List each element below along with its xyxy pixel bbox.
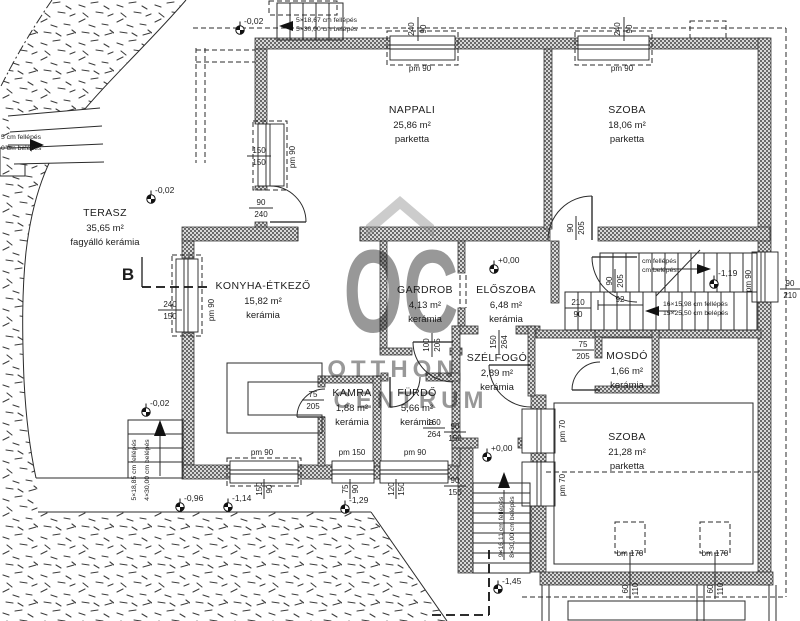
room-label-eloszoba: ELŐSZOBA 6,48 m² kerámia xyxy=(476,282,536,325)
room-floor: parketta xyxy=(610,461,645,472)
level-value: -1,45 xyxy=(502,576,522,586)
dim-label: bm 170 xyxy=(617,549,644,558)
stair-note: 16×15,98 cm fellépés xyxy=(663,301,728,308)
dim-pm: pm 90 xyxy=(404,448,427,457)
window-furdo-bottom xyxy=(380,461,448,483)
room-area: 2,89 m² xyxy=(481,368,513,379)
dim-value: 90 xyxy=(566,223,575,232)
stair-note: cm belépés xyxy=(642,267,677,274)
wall-segment xyxy=(255,186,267,190)
dim-door-mosdo: 75 205 xyxy=(572,340,594,361)
room-name: KAMRA xyxy=(332,387,371,399)
dim-value: 150 xyxy=(252,146,266,155)
level-marker-garden4: -1,45 xyxy=(494,576,522,593)
section-label: B xyxy=(122,265,134,284)
room-area: 15,82 m² xyxy=(244,296,282,307)
stair-note: 15×25,50 cm belépés xyxy=(663,310,729,317)
room-area: 1,66 m² xyxy=(611,366,643,377)
level-marker-entry: +0,00 xyxy=(483,443,513,461)
dim-92: 92 xyxy=(616,295,625,304)
stair-note: 0 cm belépés xyxy=(1,145,42,152)
room-area: 35,65 m² xyxy=(86,223,124,234)
dim-value: 205 xyxy=(306,402,320,411)
room-label-mosdo: MOSDÓ 1,66 m² kerámia xyxy=(606,349,648,391)
stair-note: 5 cm fellépés xyxy=(1,134,42,141)
room-floor: kerámia xyxy=(408,314,443,325)
roof-dashed-box xyxy=(690,21,726,38)
room-floor: kerámia xyxy=(489,314,524,325)
stair-note: 5×30,00 cm belépés xyxy=(296,26,358,33)
dim-value: 110 xyxy=(631,582,640,595)
room-floor: kerámia xyxy=(610,380,645,391)
dim-value: 75 xyxy=(309,390,318,399)
dim-value: 240 xyxy=(407,22,416,36)
level-value: -1,29 xyxy=(349,495,369,505)
dim-label: bm 170 xyxy=(702,549,729,558)
dim-value: 264 xyxy=(427,430,441,439)
dim-value: 90 xyxy=(625,24,634,33)
dim-value: 75 xyxy=(341,484,350,493)
level-marker-garden1: -0,96 xyxy=(176,493,204,511)
level-marker-stair: -1,19 xyxy=(710,268,738,288)
wall-segment xyxy=(531,395,546,409)
wall-segment xyxy=(531,506,546,572)
stair-note: 4×30,00 cm belépés xyxy=(144,439,151,501)
level-value: -0,96 xyxy=(184,493,204,503)
dim-pm: pm 90 xyxy=(288,145,297,168)
dim-value: 210 xyxy=(571,298,585,307)
dim-value: 90 xyxy=(451,476,460,485)
dim-door-szoba1: 90 205 xyxy=(566,216,586,240)
floor-plan-drawing: OC OTTHON CENTRUM TERASZ 35,65 m² fagyál… xyxy=(0,0,800,621)
dim-pm: pm 90 xyxy=(207,298,216,321)
room-label-szoba2: SZOBA 21,28 m² parketta xyxy=(608,431,646,472)
dim-opening-eloszoba: 210 90 xyxy=(565,298,591,319)
room-area: 4,13 m² xyxy=(409,300,441,311)
wall-segment xyxy=(182,333,194,465)
wall-segment xyxy=(528,326,535,396)
szoba2-inner-outline xyxy=(554,403,753,564)
wall-segment xyxy=(652,330,659,393)
dim-value: 264 xyxy=(500,335,509,349)
dim-pm: pm 90 xyxy=(611,64,634,73)
dim-value: 90 xyxy=(257,198,266,207)
room-label-nappali: NAPPALI 25,86 m² parketta xyxy=(389,104,435,145)
room-area: 21,28 m² xyxy=(608,447,646,458)
wall-segment xyxy=(544,49,552,229)
dim-value: 150 xyxy=(397,482,406,496)
room-floor: kerámia xyxy=(480,382,515,393)
window-konyha-left xyxy=(172,255,202,336)
room-name: TERASZ xyxy=(83,207,127,219)
wall-segment xyxy=(540,572,773,585)
room-name: SZÉLFOGÓ xyxy=(467,351,527,364)
wall-segment xyxy=(551,241,559,303)
room-label-szoba1: SZOBA 18,06 m² parketta xyxy=(608,104,646,145)
dim-value: 90 xyxy=(265,484,274,493)
dim-value: 150 xyxy=(448,488,462,497)
wall-segment xyxy=(595,337,602,358)
level-marker-top: -0,02 xyxy=(236,16,264,34)
room-name: SZOBA xyxy=(608,431,646,443)
dim-value: 90 xyxy=(786,279,795,288)
level-value: -0,02 xyxy=(150,398,170,408)
dim-value: 60 xyxy=(706,584,715,593)
stairs-inner-lower-flight xyxy=(565,292,757,330)
stair-note: 8×30,00 cm belépés xyxy=(509,496,516,558)
room-floor: fagyálló kerámia xyxy=(70,237,140,248)
room-name: MOSDÓ xyxy=(606,349,648,362)
dim-value: 150 xyxy=(448,434,462,443)
wall-segment xyxy=(758,302,771,585)
stair-note: 9×16,11 cm fellépés xyxy=(498,496,505,557)
wall-segment xyxy=(458,241,465,273)
dim-value: 205 xyxy=(616,274,625,288)
room-floor: kerámia xyxy=(335,417,370,428)
dim-pm: pm 90 xyxy=(409,64,432,73)
room-name: SZOBA xyxy=(608,104,646,116)
dim-value: 150 xyxy=(255,482,264,496)
window-stairwell-lower xyxy=(522,462,555,506)
dim-pm: pm 70 xyxy=(558,419,567,442)
room-area: 6,48 m² xyxy=(490,300,522,311)
dim-pm: pm 90 xyxy=(251,448,274,457)
wall-segment xyxy=(531,453,546,462)
level-value: -0,02 xyxy=(155,185,175,195)
dim-door-nappali: 90 240 xyxy=(249,198,273,219)
room-area: 5,66 m² xyxy=(401,403,433,414)
window-nappali-top xyxy=(387,31,458,65)
wall-segment xyxy=(595,330,659,337)
dim-value: 205 xyxy=(576,352,590,361)
dim-value: 90 xyxy=(574,310,583,319)
room-area: 18,06 m² xyxy=(608,120,646,131)
room-name: FÜRDŐ xyxy=(397,385,436,399)
dim-door-kamra: 75 205 xyxy=(302,390,324,411)
room-name: GARDROB xyxy=(397,284,453,296)
dim-value: 90 xyxy=(419,24,428,33)
dim-value: 90 xyxy=(605,276,614,285)
window-stairwell-upper xyxy=(522,409,555,453)
level-marker-garden2: -1,14 xyxy=(224,493,252,511)
terrain-hatch-garden xyxy=(0,512,447,621)
wall-segment xyxy=(598,227,770,241)
level-value: -0,02 xyxy=(244,16,264,26)
level-marker-garden3: -1,29 xyxy=(341,495,369,513)
room-name: KONYHA-ÉTKEZŐ xyxy=(215,278,310,292)
dim-value: 205 xyxy=(433,338,442,352)
dim-value: 240 xyxy=(613,22,622,36)
level-value: -1,14 xyxy=(232,493,252,503)
dim-pm: pm 70 xyxy=(558,473,567,496)
wall-segment xyxy=(458,308,465,328)
stair-note: 5×18,67 cm fellépés xyxy=(296,17,358,24)
level-marker-terasz: -0,02 xyxy=(147,185,175,203)
watermark-line1: OTTHON xyxy=(327,356,458,383)
level-value: -1,19 xyxy=(718,268,738,278)
dim-value: 210 xyxy=(783,291,797,300)
level-value: +0,00 xyxy=(491,443,513,453)
dim-value: 60 xyxy=(621,584,630,593)
dim-value: 100 xyxy=(422,338,431,352)
level-marker-eloszoba: +0,00 xyxy=(490,255,520,273)
stair-note: 5×18,85 cm fellépés xyxy=(131,439,138,501)
room-label-kamra: KAMRA 1,88 m² kerámia xyxy=(332,387,371,428)
dim-value: 240 xyxy=(254,210,268,219)
level-marker-corner: -0,02 xyxy=(142,398,170,416)
window-kamra-bottom xyxy=(332,461,374,483)
level-value: +0,00 xyxy=(498,255,520,265)
dim-value: 75 xyxy=(579,340,588,349)
lower-terrace-slab xyxy=(568,601,745,620)
room-label-konyha: KONYHA-ÉTKEZŐ 15,82 m² kerámia xyxy=(215,278,310,321)
window-stairhall-right xyxy=(752,252,778,302)
dim-pm: pm 90 xyxy=(744,269,753,292)
dim-value: 160 xyxy=(427,418,441,427)
door-terasz-nappali xyxy=(270,186,306,222)
wall-segment xyxy=(182,227,298,241)
wall-segment xyxy=(298,465,332,479)
dim-value: 150 xyxy=(489,335,498,349)
floor-plan-canvas: OC OTTHON CENTRUM TERASZ 35,65 m² fagyál… xyxy=(0,0,800,621)
room-area: 1,88 m² xyxy=(336,403,368,414)
dim-pm: pm 150 xyxy=(339,448,366,457)
dim-door-stairhall: 90 205 xyxy=(605,269,625,293)
wall-segment xyxy=(374,465,380,479)
room-floor: parketta xyxy=(395,134,430,145)
dim-value: 90 xyxy=(451,422,460,431)
room-name: NAPPALI xyxy=(389,104,435,116)
room-area: 25,86 m² xyxy=(393,120,431,131)
dim-value: 150 xyxy=(163,312,177,321)
dim-value: 150 xyxy=(252,158,266,167)
room-floor: kerámia xyxy=(246,310,281,321)
wall-segment xyxy=(458,448,473,573)
room-floor: parketta xyxy=(610,134,645,145)
room-name: ELŐSZOBA xyxy=(476,282,536,296)
dim-value: 90 xyxy=(351,484,360,493)
dim-front-door-top: 150 264 xyxy=(489,330,509,354)
dim-value: 205 xyxy=(577,221,586,235)
dim-value: 240 xyxy=(163,300,177,309)
dim-value: 120 xyxy=(387,482,396,496)
room-label-terasz: TERASZ 35,65 m² fagyálló kerámia xyxy=(70,207,140,248)
wall-segment xyxy=(255,49,267,124)
stair-note: cm fellépés xyxy=(642,258,677,265)
wall-segment xyxy=(182,465,230,479)
wall-segment xyxy=(758,38,771,252)
dim-value: 110 xyxy=(716,582,725,595)
